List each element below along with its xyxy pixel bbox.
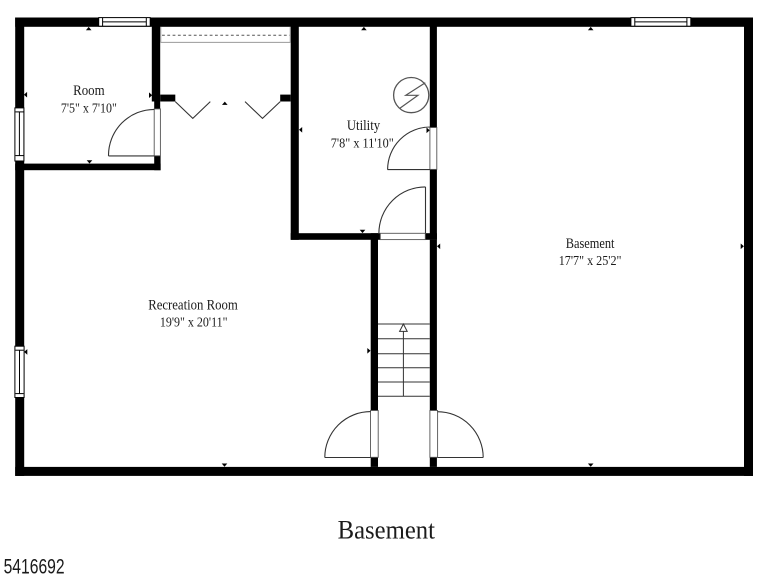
svg-text:Room: Room (73, 83, 105, 99)
svg-text:17'7" x 25'2": 17'7" x 25'2" (559, 253, 622, 268)
svg-text:Basement: Basement (338, 515, 436, 545)
svg-text:19'9" x 20'11": 19'9" x 20'11" (160, 315, 228, 330)
svg-text:Recreation Room: Recreation Room (148, 297, 238, 313)
svg-text:7'5" x 7'10": 7'5" x 7'10" (61, 100, 117, 115)
svg-text:7'8" x 11'10": 7'8" x 11'10" (331, 136, 394, 151)
svg-text:5416692: 5416692 (4, 555, 65, 576)
svg-text:Utility: Utility (347, 118, 381, 134)
svg-text:Basement: Basement (566, 236, 615, 252)
